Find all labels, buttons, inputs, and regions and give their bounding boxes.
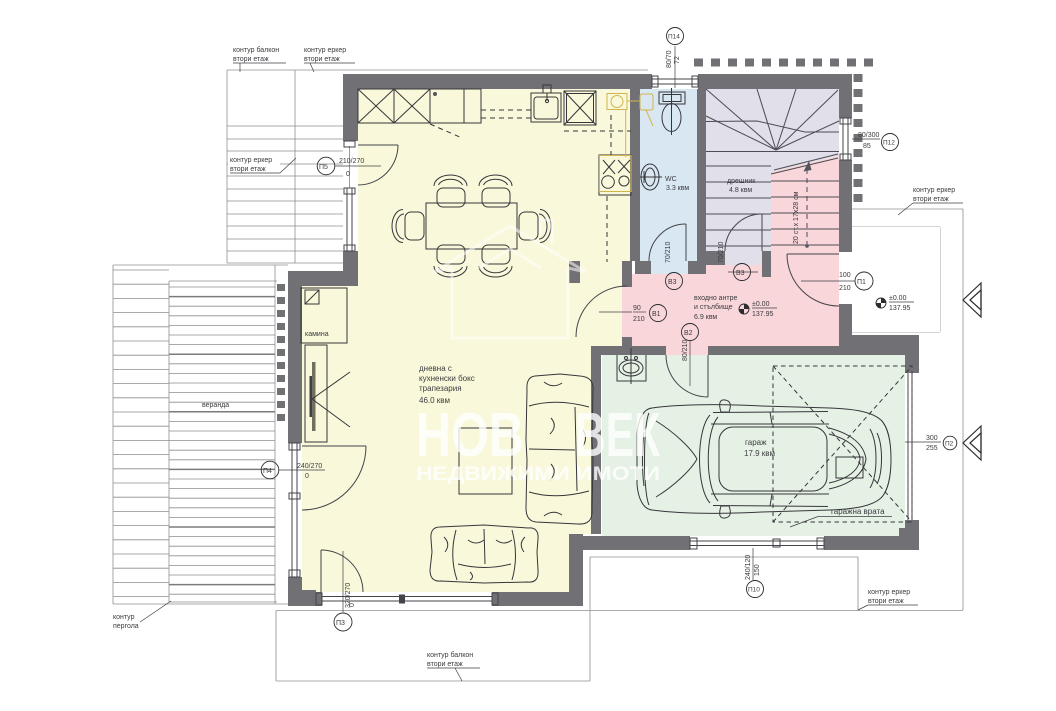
svg-text:П14: П14	[668, 34, 680, 41]
svg-text:трапезария: трапезария	[419, 384, 462, 393]
svg-text:0: 0	[349, 603, 356, 607]
svg-text:контур еркер: контур еркер	[230, 157, 272, 164]
svg-text:100: 100	[839, 272, 851, 279]
svg-text:гаражна врата: гаражна врата	[831, 507, 885, 516]
svg-text:П5: П5	[319, 164, 328, 171]
svg-text:контур еркер: контур еркер	[868, 589, 910, 596]
svg-text:240/120: 240/120	[745, 555, 752, 580]
svg-text:П2: П2	[945, 441, 954, 448]
svg-text:17.9 квм: 17.9 квм	[744, 449, 775, 458]
svg-text:В2: В2	[684, 330, 693, 337]
svg-text:85: 85	[863, 143, 871, 150]
svg-text:В1: В1	[652, 311, 661, 318]
svg-text:кухненски бокс: кухненски бокс	[419, 374, 475, 383]
svg-text:НЕДВИЖИМИ ИМОТИ: НЕДВИЖИМИ ИМОТИ	[416, 464, 660, 485]
svg-text:НОВ: НОВ	[416, 401, 524, 470]
svg-text:80/210: 80/210	[682, 339, 689, 361]
svg-text:контур еркер: контур еркер	[304, 47, 346, 54]
svg-text:дневна с: дневна с	[419, 364, 452, 373]
svg-text:втори етаж: втори етаж	[304, 56, 340, 63]
svg-text:П3: П3	[336, 620, 345, 627]
svg-text:90: 90	[633, 305, 641, 312]
svg-text:входно антре: входно антре	[694, 295, 738, 302]
svg-text:WC: WC	[665, 176, 677, 183]
svg-text:46.0 квм: 46.0 квм	[419, 396, 450, 405]
svg-text:В3: В3	[668, 279, 677, 286]
svg-text:80/70: 80/70	[666, 50, 673, 68]
svg-text:П4: П4	[263, 468, 272, 475]
svg-text:П1: П1	[857, 279, 866, 286]
svg-text:дрешник: дрешник	[727, 178, 756, 185]
svg-text:±0.00: ±0.00	[889, 295, 907, 302]
svg-text:0: 0	[346, 171, 350, 178]
svg-text:137.95: 137.95	[752, 311, 774, 318]
svg-text:210: 210	[839, 285, 851, 292]
svg-text:210: 210	[633, 316, 645, 323]
svg-text:втори етаж: втори етаж	[913, 196, 949, 203]
svg-text:80/300: 80/300	[858, 132, 880, 139]
svg-text:и стълбище: и стълбище	[694, 303, 733, 311]
svg-text:камина: камина	[305, 331, 329, 338]
svg-text:3.3 квм: 3.3 квм	[666, 185, 689, 192]
svg-text:255: 255	[926, 445, 938, 452]
svg-text:210/270: 210/270	[339, 158, 364, 165]
svg-text:20 ст.х 17х28 см: 20 ст.х 17х28 см	[793, 191, 800, 244]
svg-text:6.9 квм: 6.9 квм	[694, 314, 717, 321]
svg-text:гараж: гараж	[745, 438, 767, 447]
svg-text:веранда: веранда	[202, 402, 229, 409]
svg-text:П10: П10	[748, 587, 760, 594]
svg-text:4.8 квм: 4.8 квм	[729, 187, 752, 194]
svg-text:±0.00: ±0.00	[752, 301, 770, 308]
svg-text:0: 0	[305, 473, 309, 480]
svg-text:70/210: 70/210	[665, 241, 672, 263]
svg-text:П12: П12	[883, 140, 895, 147]
svg-text:240/270: 240/270	[297, 463, 322, 470]
svg-text:втори етаж: втори етаж	[233, 56, 269, 63]
svg-text:300: 300	[926, 435, 938, 442]
svg-text:контур еркер: контур еркер	[913, 187, 955, 194]
svg-text:втори етаж: втори етаж	[868, 598, 904, 605]
svg-text:втори етаж: втори етаж	[230, 166, 266, 173]
svg-text:контур: контур	[113, 614, 135, 621]
svg-text:контур балкон: контур балкон	[233, 46, 279, 54]
svg-text:втори етаж: втори етаж	[427, 661, 463, 668]
svg-text:контур балкон: контур балкон	[427, 651, 473, 659]
svg-text:70/210: 70/210	[718, 241, 725, 263]
svg-text:ВЕК: ВЕК	[575, 401, 660, 470]
svg-text:150: 150	[754, 564, 761, 576]
svg-text:В3: В3	[736, 270, 745, 277]
svg-text:72: 72	[674, 56, 681, 64]
svg-text:пергола: пергола	[113, 623, 139, 630]
svg-text:137.95: 137.95	[889, 305, 911, 312]
